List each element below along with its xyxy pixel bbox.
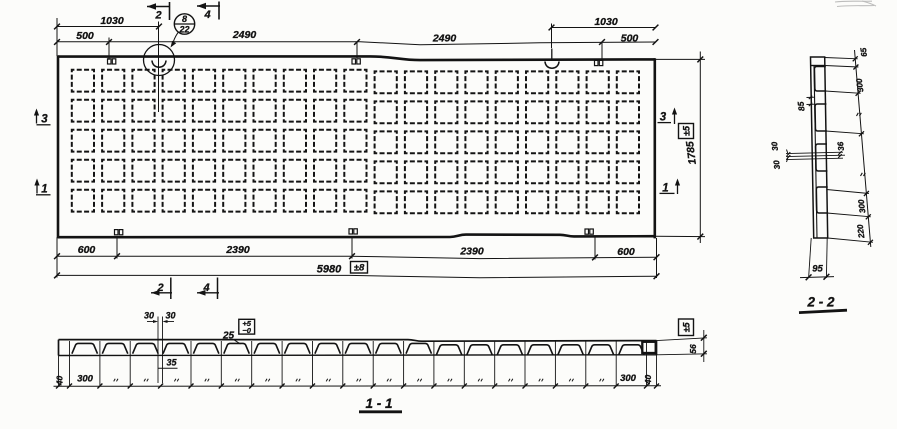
svg-text:1: 1 bbox=[41, 184, 47, 196]
svg-text:65: 65 bbox=[859, 47, 869, 58]
svg-text:40: 40 bbox=[643, 375, 653, 386]
svg-text:300: 300 bbox=[855, 78, 866, 93]
svg-text:2490: 2490 bbox=[432, 33, 457, 45]
svg-text:56: 56 bbox=[688, 344, 698, 354]
svg-text:2 - 2: 2 - 2 bbox=[806, 295, 835, 310]
svg-text:4: 4 bbox=[202, 282, 209, 294]
svg-text:−0: −0 bbox=[242, 326, 251, 335]
svg-text:2390: 2390 bbox=[459, 245, 484, 257]
svg-text:1 - 1: 1 - 1 bbox=[365, 396, 392, 411]
svg-text:30: 30 bbox=[770, 141, 780, 152]
svg-text:2: 2 bbox=[156, 282, 163, 294]
svg-text:40: 40 bbox=[55, 376, 65, 387]
svg-text:600: 600 bbox=[78, 244, 96, 256]
svg-text:1030: 1030 bbox=[594, 16, 618, 28]
svg-text:600: 600 bbox=[617, 246, 635, 258]
svg-text:300: 300 bbox=[77, 373, 94, 384]
svg-text:3: 3 bbox=[41, 114, 48, 126]
svg-text:2: 2 bbox=[154, 10, 161, 22]
svg-text:30: 30 bbox=[772, 159, 782, 170]
svg-text:4: 4 bbox=[203, 9, 210, 21]
svg-text:2490: 2490 bbox=[232, 29, 257, 41]
svg-text:3: 3 bbox=[660, 112, 667, 124]
svg-text:25: 25 bbox=[222, 331, 235, 342]
svg-text:1: 1 bbox=[662, 183, 668, 195]
svg-text:500: 500 bbox=[76, 30, 94, 42]
svg-text:2390: 2390 bbox=[225, 244, 250, 256]
svg-text:500: 500 bbox=[621, 33, 639, 45]
svg-text:220: 220 bbox=[856, 224, 867, 240]
svg-text:30: 30 bbox=[144, 310, 154, 320]
svg-text:300: 300 bbox=[620, 373, 637, 384]
svg-text:1030: 1030 bbox=[100, 15, 124, 27]
svg-text:36: 36 bbox=[836, 141, 846, 152]
svg-text:85: 85 bbox=[795, 101, 806, 112]
svg-text:30: 30 bbox=[165, 310, 175, 320]
svg-text:5980: 5980 bbox=[317, 263, 342, 275]
svg-text:±5: ±5 bbox=[682, 125, 692, 136]
svg-text:±8: ±8 bbox=[354, 263, 365, 274]
svg-text:22: 22 bbox=[178, 25, 189, 35]
svg-text:±5: ±5 bbox=[681, 321, 691, 332]
svg-text:300: 300 bbox=[857, 199, 868, 214]
svg-text:8: 8 bbox=[182, 14, 187, 24]
svg-text:35: 35 bbox=[166, 358, 177, 368]
svg-text:95: 95 bbox=[812, 264, 823, 275]
